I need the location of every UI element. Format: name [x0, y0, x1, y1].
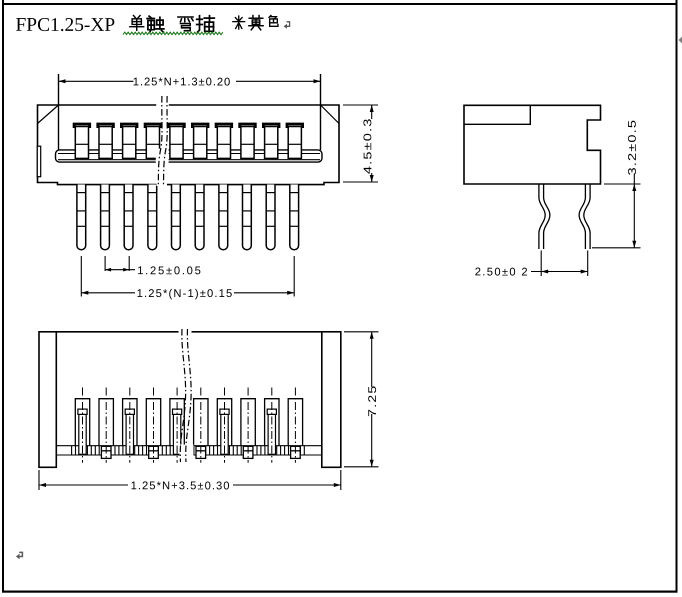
svg-text:7.25: 7.25: [367, 385, 379, 417]
svg-text:1.25*N+1.3±0.20: 1.25*N+1.3±0.20: [133, 76, 231, 88]
svg-text:2.50±0 2: 2.50±0 2: [475, 266, 529, 278]
svg-text:3.2±0.5: 3.2±0.5: [627, 119, 639, 176]
svg-text:1.25*(N-1)±0.15: 1.25*(N-1)±0.15: [137, 288, 234, 300]
svg-text:FPC1.25-XP: FPC1.25-XP: [15, 15, 115, 36]
svg-text:1.25±0.05: 1.25±0.05: [137, 265, 202, 277]
svg-text:4.5±0.3: 4.5±0.3: [362, 117, 374, 174]
svg-text:1.25*N+3.5±0.30: 1.25*N+3.5±0.30: [131, 480, 231, 492]
